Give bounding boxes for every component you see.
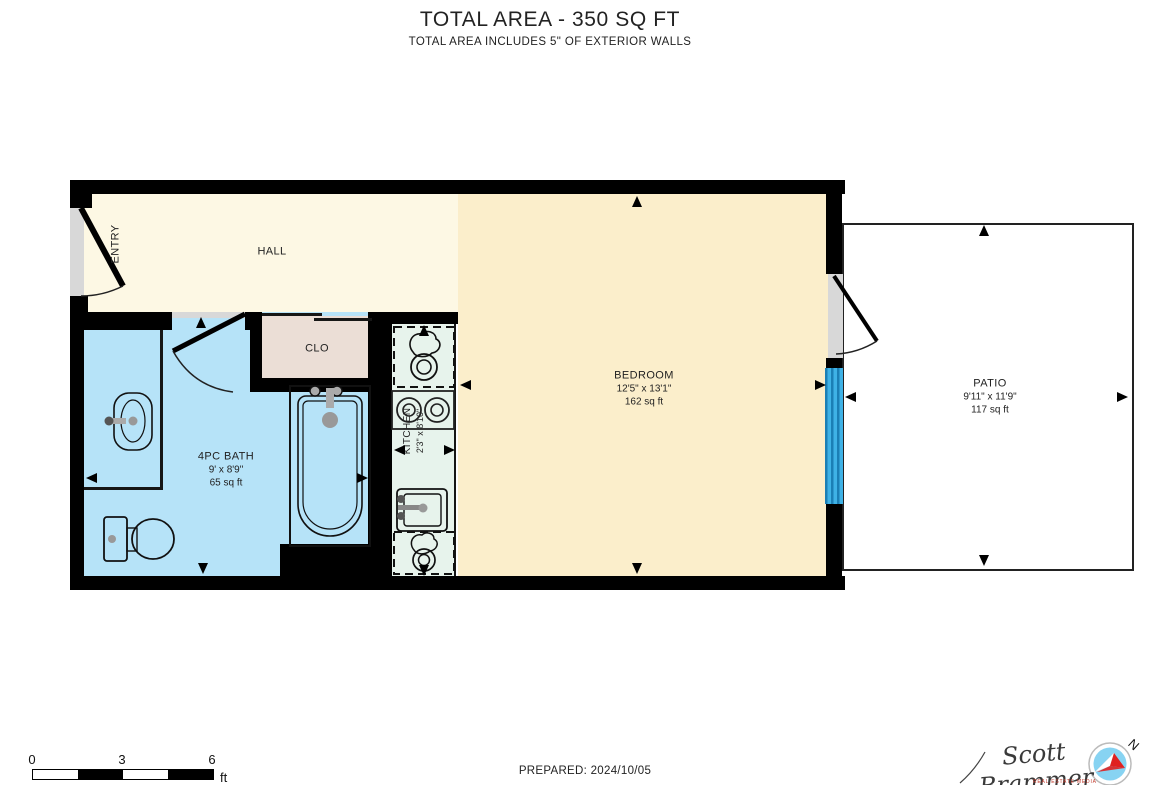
patio-dim-arrow-down (979, 555, 989, 566)
closet-label: CLO (305, 343, 329, 356)
bedroom-dim-arrow-up (632, 196, 642, 207)
kitchen-dim-arrow-right (444, 445, 455, 455)
signature-name: Scott Brammer (948, 733, 1122, 785)
patio-label: PATIO 9'11" x 11'9" 117 sq ft (963, 378, 1016, 417)
vanity-partition-vertical (160, 330, 163, 490)
closet-slider-panel-2 (314, 318, 372, 321)
patio-door-recess (828, 274, 843, 358)
compass-north-letter: N (1125, 736, 1142, 753)
bedroom-label: BEDROOM 12'5" x 13'1" 162 sq ft (614, 370, 674, 409)
patio-dim-arrow-left (845, 392, 856, 402)
bath-label: 4PC BATH 9' x 8'9" 65 sq ft (198, 451, 254, 490)
patio-dim-arrow-right (1117, 392, 1128, 402)
bedroom-dim-arrow-left (460, 380, 471, 390)
kitchen-dim-arrow-left (394, 445, 405, 455)
bath-dim-arrow-down (198, 563, 208, 574)
kitchen-dim-arrow-down (419, 565, 429, 576)
kitchen-dim-arrow-up (419, 325, 429, 336)
wall-entry-stub-top (70, 180, 92, 208)
entry-door-recess (70, 208, 84, 296)
bedroom-dim-arrow-down (632, 563, 642, 574)
wall-outer-bottom (70, 576, 845, 590)
bedroom-dim-arrow-right (815, 380, 826, 390)
hall-label: HALL (257, 246, 286, 259)
header: TOTAL AREA - 350 SQ FT TOTAL AREA INCLUD… (0, 8, 1100, 48)
wall-hall-bath-left (84, 312, 172, 330)
patio-dim-arrow-up (979, 225, 989, 236)
closet-slider-panel-1 (262, 313, 322, 316)
entry-label: ENTRY (110, 224, 123, 263)
signature-tagline: REAL ESTATE MEDIA (1033, 779, 1097, 785)
page-subtitle: TOTAL AREA INCLUDES 5" OF EXTERIOR WALLS (0, 36, 1100, 48)
wall-outer-top (70, 180, 845, 194)
wall-outer-right-upper (826, 180, 842, 274)
wall-outer-left (70, 318, 84, 590)
wall-kitchen-left (368, 312, 392, 576)
vanity-partition-horizontal (84, 487, 163, 490)
wall-under-tub (280, 544, 392, 576)
bedroom-window (825, 368, 843, 504)
wall-outer-right-lower (826, 502, 842, 590)
page-title: TOTAL AREA - 350 SQ FT (0, 8, 1100, 32)
bath-dim-arrow-right (357, 473, 368, 483)
floorplan-page: TOTAL AREA - 350 SQ FT TOTAL AREA INCLUD… (0, 0, 1170, 785)
bath-dim-arrow-up (196, 317, 206, 328)
bath-door-recess (172, 312, 245, 318)
bath-dim-arrow-left (86, 473, 97, 483)
